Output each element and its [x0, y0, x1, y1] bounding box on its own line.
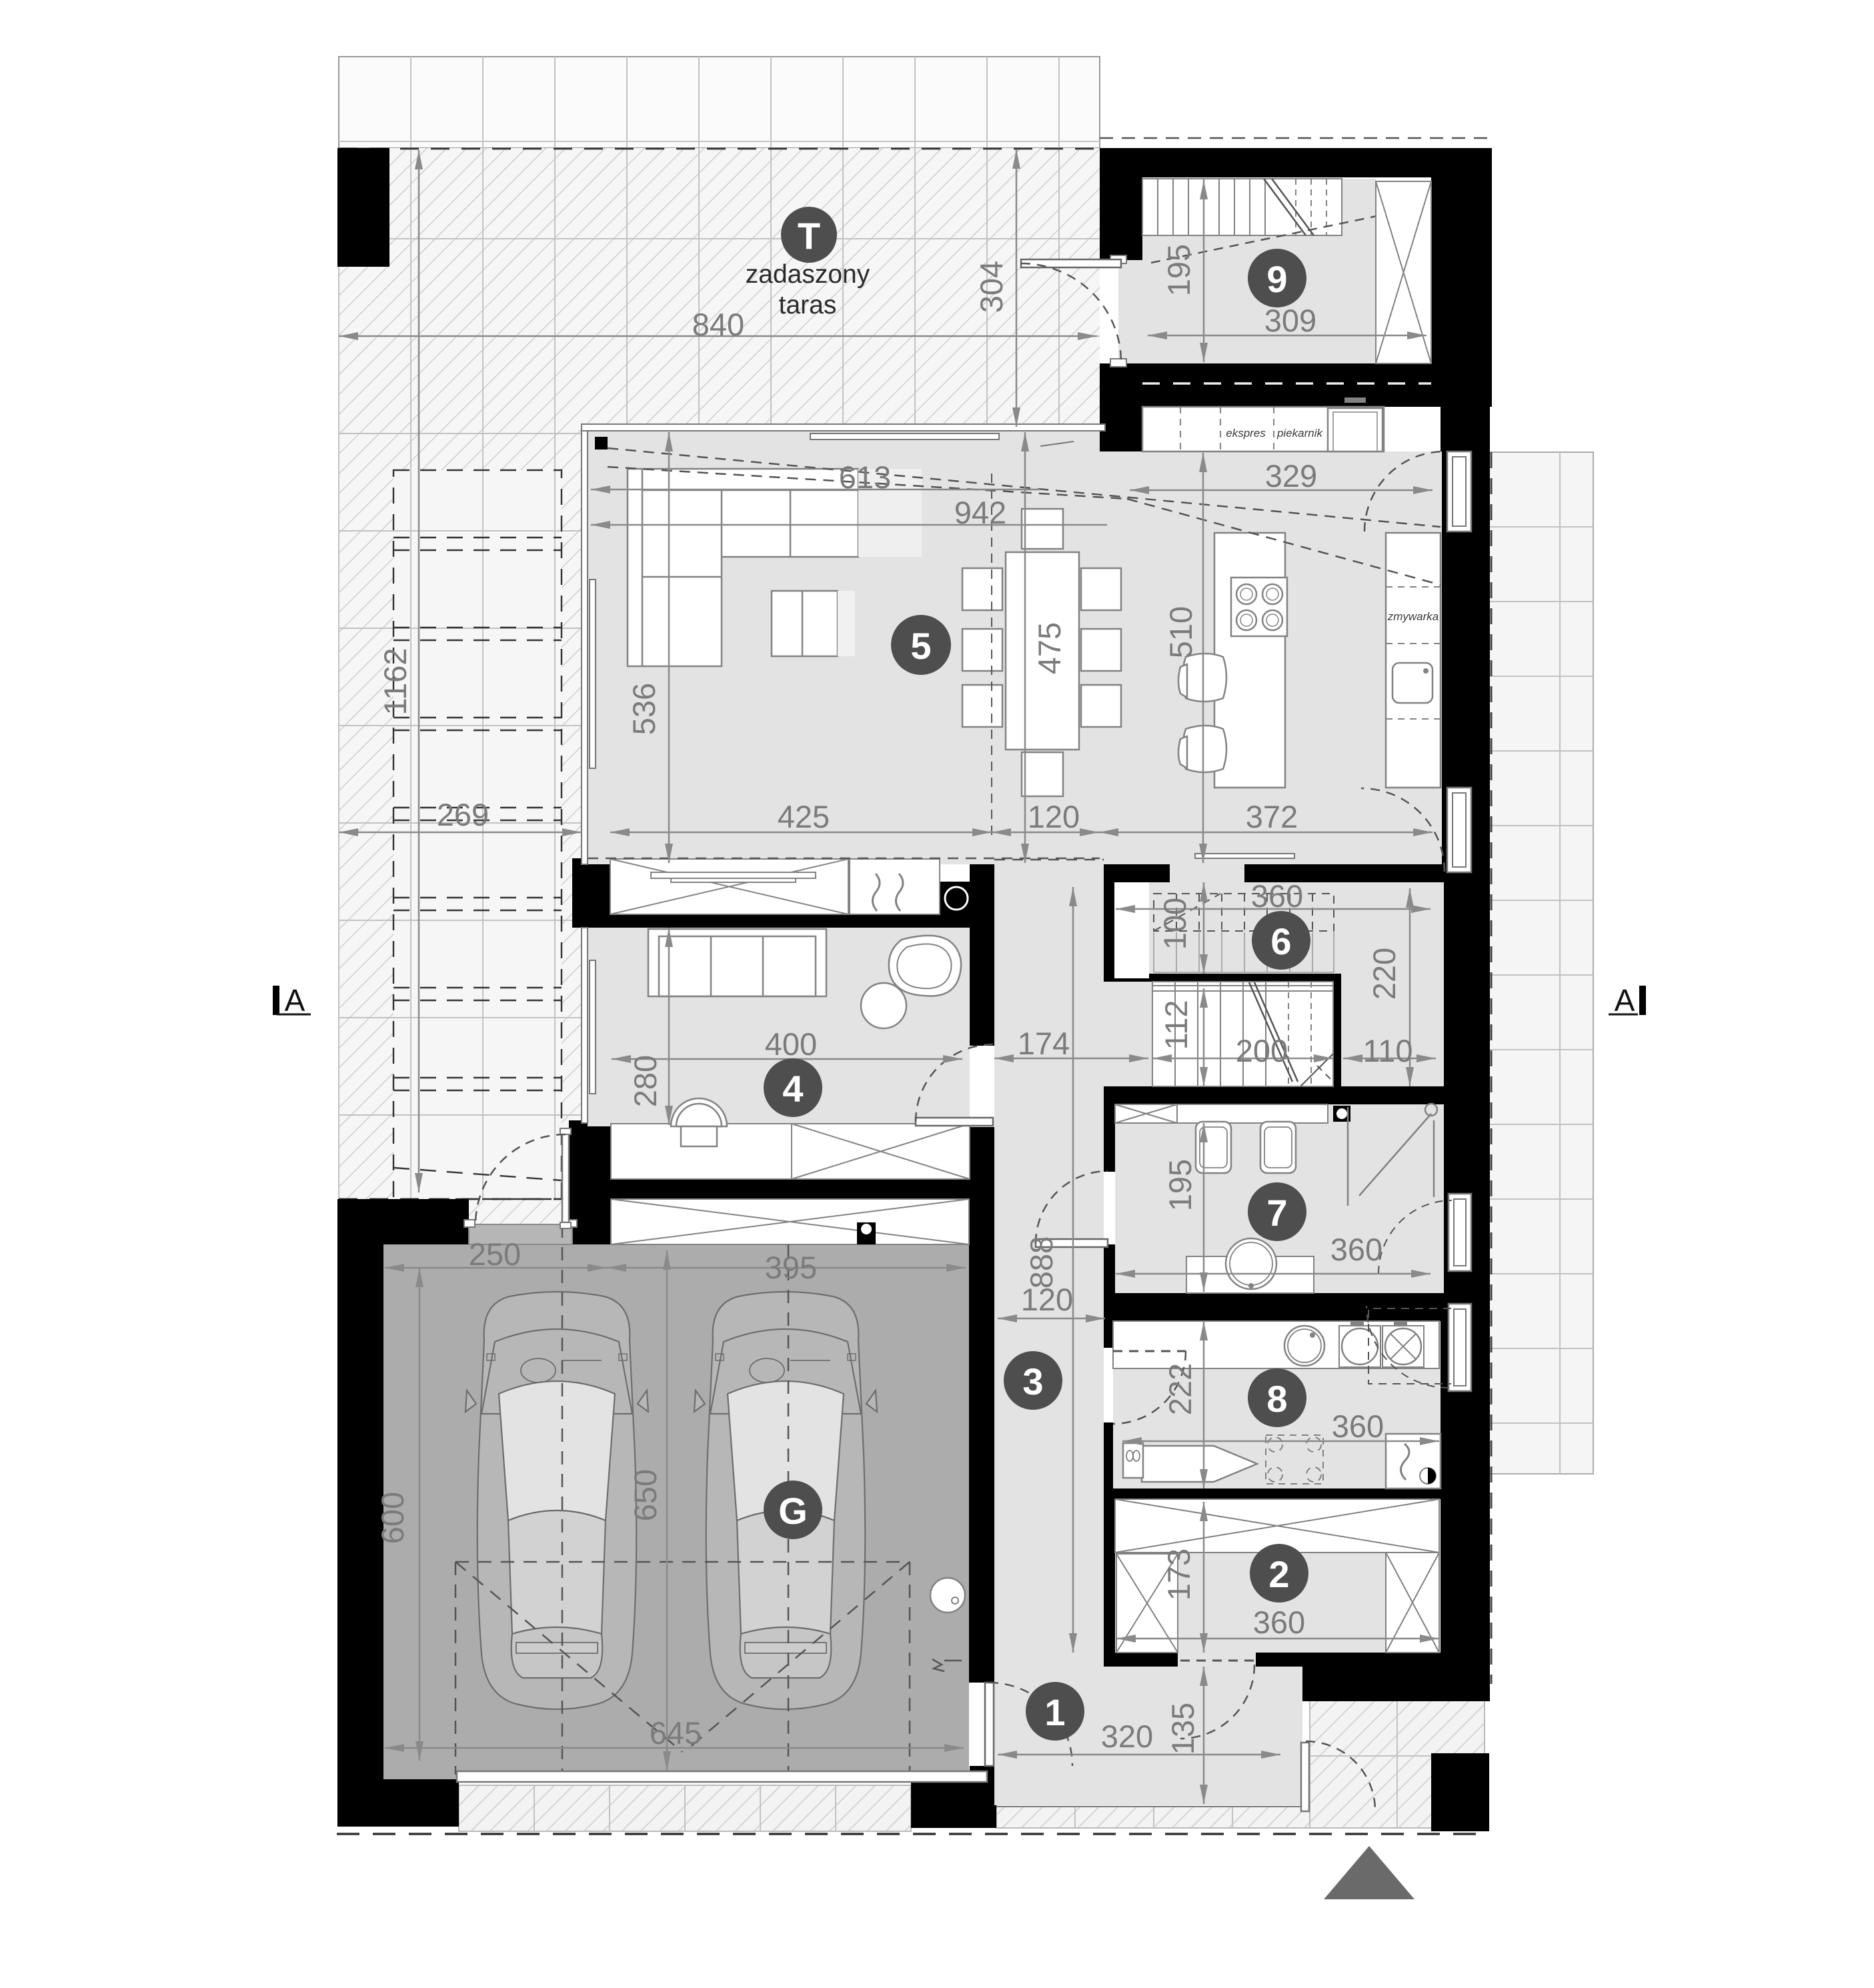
svg-text:1162: 1162 [377, 648, 413, 715]
svg-text:195: 195 [1162, 1159, 1198, 1211]
svg-text:A: A [1615, 983, 1635, 1018]
svg-text:174: 174 [1018, 1026, 1070, 1061]
svg-text:840: 840 [692, 307, 744, 342]
svg-text:425: 425 [778, 799, 830, 834]
svg-text:942: 942 [954, 495, 1006, 530]
svg-text:ekspres: ekspres [1226, 427, 1266, 439]
svg-text:9: 9 [1266, 258, 1287, 300]
svg-text:536: 536 [626, 683, 662, 735]
svg-text:6: 6 [1270, 920, 1291, 962]
svg-text:360: 360 [1253, 1605, 1305, 1640]
svg-text:400: 400 [765, 1026, 817, 1062]
svg-text:320: 320 [1101, 1719, 1153, 1754]
svg-text:650: 650 [628, 1469, 663, 1521]
svg-text:1: 1 [1044, 1691, 1065, 1733]
svg-text:269: 269 [437, 797, 489, 832]
svg-text:200: 200 [1236, 1033, 1288, 1068]
svg-text:112: 112 [1158, 1000, 1194, 1050]
svg-text:395: 395 [765, 1250, 817, 1285]
svg-text:135: 135 [1165, 1703, 1200, 1755]
svg-text:120: 120 [1028, 799, 1080, 834]
svg-text:250: 250 [469, 1236, 521, 1272]
svg-text:475: 475 [1032, 622, 1067, 674]
svg-text:360: 360 [1330, 1232, 1382, 1267]
svg-text:220: 220 [1366, 948, 1402, 1000]
svg-text:G: G [778, 1490, 808, 1532]
svg-text:360: 360 [1332, 1408, 1384, 1444]
svg-text:taras: taras [779, 291, 837, 319]
svg-text:222: 222 [1162, 1363, 1198, 1415]
svg-text:280: 280 [628, 1055, 663, 1107]
svg-text:510: 510 [1163, 606, 1198, 658]
svg-text:329: 329 [1265, 458, 1317, 493]
svg-text:4: 4 [782, 1068, 803, 1110]
svg-text:8: 8 [1266, 1378, 1287, 1420]
svg-text:360: 360 [1251, 878, 1303, 914]
svg-text:5: 5 [910, 625, 931, 667]
svg-text:piekarnik: piekarnik [1276, 427, 1324, 439]
svg-text:A: A [285, 983, 305, 1018]
svg-text:309: 309 [1264, 303, 1316, 338]
svg-text:195: 195 [1161, 244, 1196, 296]
svg-text:zmywarka: zmywarka [1387, 610, 1439, 623]
svg-text:613: 613 [839, 459, 891, 495]
svg-text:372: 372 [1246, 799, 1298, 834]
svg-text:645: 645 [650, 1715, 702, 1751]
svg-text:110: 110 [1363, 1033, 1413, 1068]
svg-text:888: 888 [1024, 1236, 1059, 1288]
svg-text:3: 3 [1022, 1360, 1043, 1402]
svg-text:zadaszony: zadaszony [746, 260, 870, 289]
svg-text:7: 7 [1266, 1192, 1287, 1234]
svg-text:100: 100 [1157, 898, 1192, 950]
svg-text:T: T [798, 215, 820, 257]
svg-text:600: 600 [375, 1492, 410, 1544]
svg-text:2: 2 [1268, 1553, 1289, 1595]
svg-text:173: 173 [1161, 1549, 1196, 1601]
svg-text:304: 304 [974, 261, 1009, 313]
